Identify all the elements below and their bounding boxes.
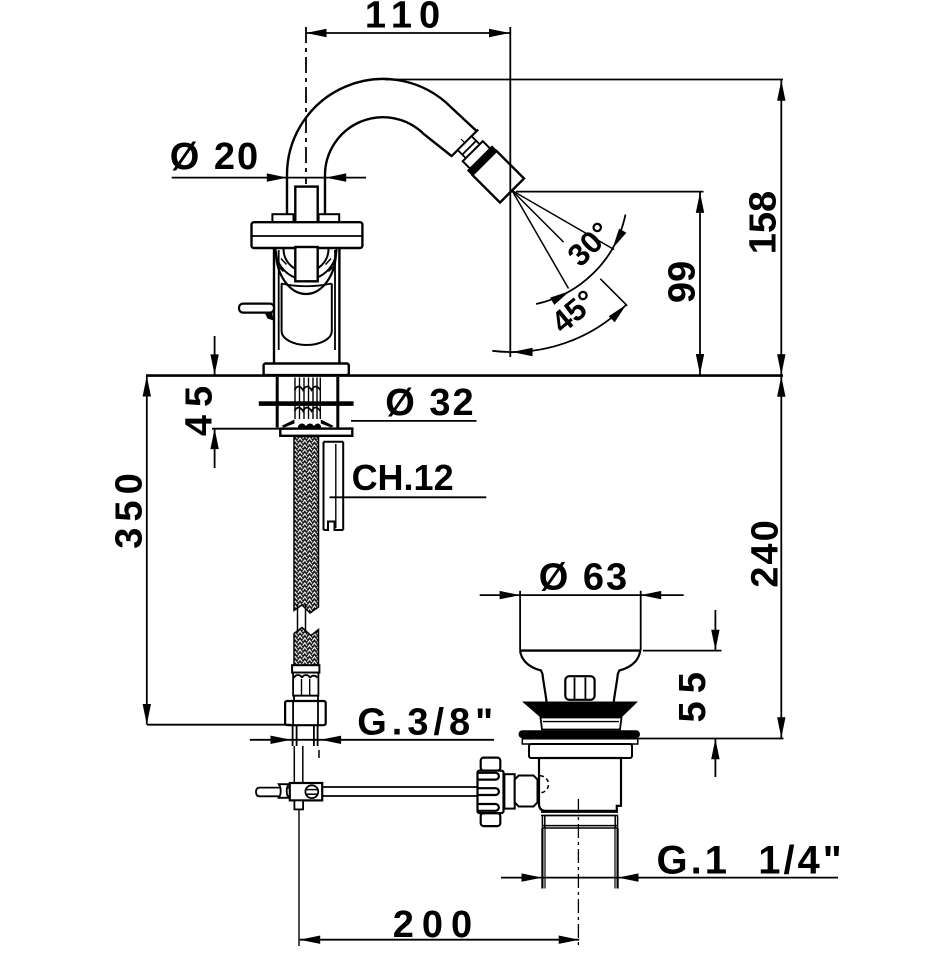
svg-text:Ø 32: Ø 32 bbox=[385, 382, 475, 424]
svg-text:G.3/8": G.3/8" bbox=[357, 702, 498, 744]
svg-text:Ø 20: Ø 20 bbox=[170, 136, 260, 178]
svg-text:200: 200 bbox=[393, 904, 480, 946]
svg-text:99: 99 bbox=[662, 261, 704, 303]
svg-text:Ø 63: Ø 63 bbox=[539, 557, 629, 599]
svg-text:158: 158 bbox=[743, 191, 785, 254]
svg-text:110: 110 bbox=[365, 0, 447, 37]
svg-text:G.1 1/4": G.1 1/4" bbox=[657, 839, 845, 883]
svg-text:55: 55 bbox=[672, 664, 714, 722]
svg-text:CH.12: CH.12 bbox=[352, 457, 454, 498]
svg-text:45: 45 bbox=[179, 378, 221, 436]
svg-text:240: 240 bbox=[745, 518, 787, 587]
svg-text:350: 350 bbox=[109, 467, 151, 548]
